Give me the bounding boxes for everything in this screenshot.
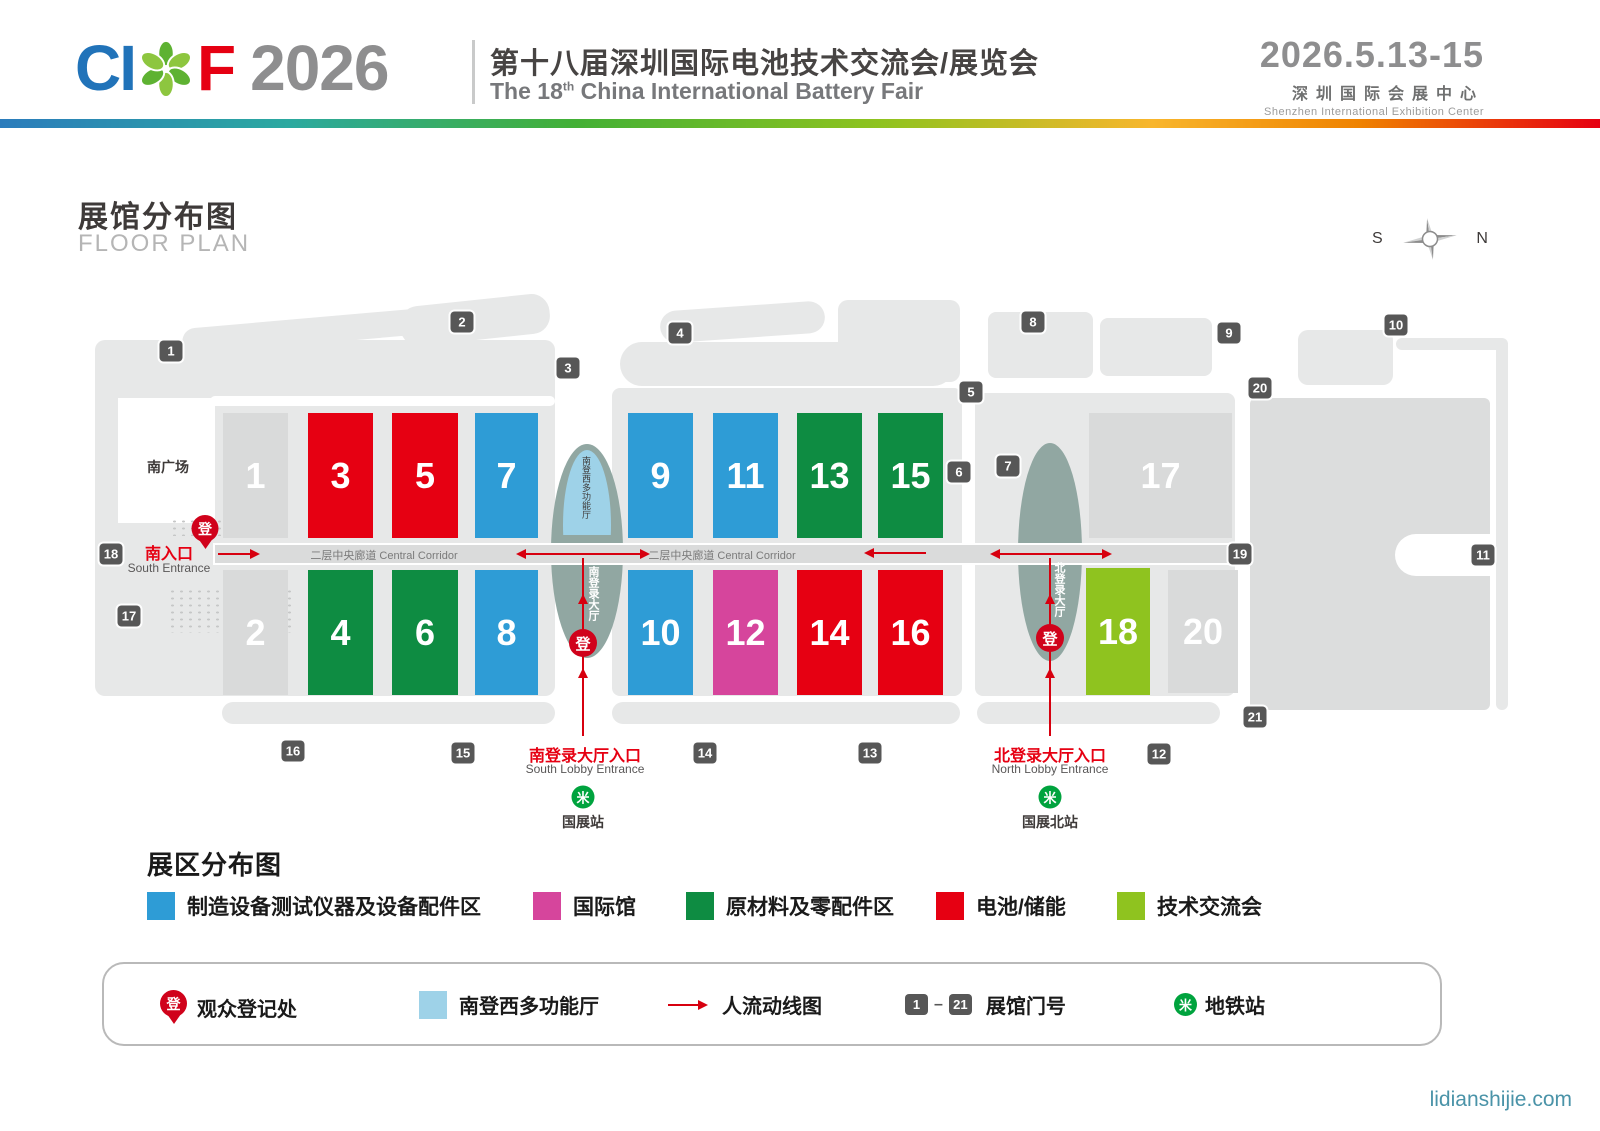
compass-rose-icon	[1395, 210, 1463, 268]
hall-11: 11	[713, 413, 778, 538]
hall-16: 16	[878, 570, 943, 695]
east-outer-wall	[1496, 340, 1508, 710]
gate-badge-21: 21	[1244, 707, 1267, 728]
south-lobby-entrance-en: South Lobby Entrance	[526, 762, 645, 776]
logo-letter-c: C	[75, 31, 119, 105]
legend-swatch-3	[936, 892, 964, 920]
flow-arrowhead-left3	[864, 548, 874, 558]
legend-item-1: 国际馆	[533, 891, 636, 921]
hall-5: 5	[392, 413, 458, 538]
gate-badge-17: 17	[118, 606, 141, 627]
south-plaza-label: 南广场	[147, 457, 189, 477]
legend-label-3: 电池/储能	[976, 891, 1066, 921]
hall-18: 18	[1086, 568, 1150, 695]
bottom-strip-b	[612, 702, 960, 724]
legend-item-3: 电池/储能	[936, 891, 1066, 921]
flow-arrow-icon	[668, 1000, 708, 1010]
key-multifunction-label: 南登西多功能厅	[459, 990, 599, 1019]
gate-badge-19: 19	[1229, 544, 1252, 565]
hall-2: 2	[223, 570, 288, 695]
hall-17: 17	[1089, 413, 1232, 538]
legend-title: 展区分布图	[147, 845, 282, 882]
hall-13: 13	[797, 413, 862, 538]
hall-20: 20	[1168, 570, 1238, 693]
metro-icon: 米	[1174, 993, 1197, 1016]
gate-badge-6: 6	[948, 462, 971, 483]
key-item-multifunction: 南登西多功能厅	[419, 990, 599, 1019]
event-dates: 2026.5.13-15	[1260, 34, 1484, 76]
website-url[interactable]: lidianshijie.com	[1430, 1088, 1572, 1112]
hall-9: 9	[628, 413, 693, 538]
legend-swatch-2	[686, 892, 714, 920]
gate-badge-5: 5	[960, 382, 983, 403]
bottom-strip-c	[977, 702, 1220, 724]
legend-item-2: 原材料及零配件区	[686, 891, 894, 921]
south-lobby-registration-icon: 登	[569, 629, 597, 657]
south-multifunction-label: 南登西多功能厅	[580, 456, 593, 519]
north-lobby-entrance-en: North Lobby Entrance	[992, 762, 1109, 776]
gate-badge-3: 3	[557, 358, 580, 379]
key-gates-label: 展馆门号	[986, 990, 1066, 1019]
roof-blob-north-b	[1100, 318, 1212, 376]
venue-name-cn: 深圳国际会展中心	[1260, 80, 1484, 104]
compass: S N	[1372, 212, 1488, 266]
metro-station-north-label: 国展北站	[1022, 812, 1078, 832]
gate-badge-2: 2	[451, 312, 474, 333]
key-registration-label: 观众登记处	[197, 993, 297, 1022]
hall-8: 8	[475, 570, 538, 695]
gate-badge-9: 9	[1218, 323, 1241, 344]
legend-item-0: 制造设备测试仪器及设备配件区	[147, 891, 481, 921]
registration-pin-icon: 登	[160, 990, 187, 1024]
flow-arrowhead-up11	[1045, 668, 1055, 678]
cibf-logo: C I F 2026	[75, 28, 388, 108]
flower-logo-icon	[137, 39, 195, 97]
event-title-en-sup: th	[563, 79, 574, 93]
gate-badge-15: 15	[452, 743, 475, 764]
logo-letter-i: I	[119, 31, 135, 105]
legend-label-4: 技术交流会	[1157, 891, 1262, 921]
gate-badge-11: 11	[1472, 545, 1495, 566]
road-above-halls	[210, 396, 555, 406]
metro-icon-north: 米	[1039, 786, 1062, 809]
key-item-flow: 人流动线图	[668, 990, 822, 1019]
metro-station-south-label: 国展站	[562, 812, 604, 832]
gate-badge-18: 18	[100, 544, 123, 565]
metro-icon-south: 米	[572, 786, 595, 809]
gate-badge-8: 8	[1022, 312, 1045, 333]
flow-line-h4	[998, 553, 1050, 556]
gate-badge-16: 16	[282, 741, 305, 762]
logo-year: 2026	[250, 31, 388, 105]
flow-line-h0	[218, 553, 252, 556]
flow-arrowhead-right5	[1102, 549, 1112, 559]
key-item-registration: 登 观众登记处	[160, 990, 297, 1024]
hall-3: 3	[308, 413, 373, 538]
gate-badge-12: 12	[1148, 744, 1171, 765]
event-title-cn: 第十八届深圳国际电池技术交流会/展览会	[490, 40, 1039, 82]
gate-range-dash: –	[934, 996, 943, 1014]
gate-badge-13: 13	[859, 743, 882, 764]
north-lobby-registration-icon: 登	[1036, 624, 1064, 652]
gate-badge-21-icon: 21	[949, 994, 972, 1015]
compass-south-label: S	[1372, 230, 1383, 248]
flow-arrowhead-right0	[250, 549, 260, 559]
hall-4: 4	[308, 570, 373, 695]
roof-blob-northeast	[1298, 330, 1393, 385]
legend-swatch-4	[1117, 892, 1145, 920]
floorplan-title-en: FLOOR PLAN	[78, 230, 250, 258]
flow-line-h1	[524, 553, 585, 556]
key-flow-label: 人流动线图	[722, 990, 822, 1019]
gate-badge-4: 4	[669, 323, 692, 344]
bottom-strip-a	[222, 702, 555, 724]
event-title-en: The 18th China International Battery Fai…	[490, 78, 923, 105]
northeast-outer-wall	[1396, 338, 1508, 350]
legend-label-2: 原材料及零配件区	[726, 891, 894, 921]
flow-arrowhead-up00	[578, 594, 588, 604]
legend-item-4: 技术交流会	[1117, 891, 1262, 921]
hall-1: 1	[223, 413, 288, 538]
hall-7: 7	[475, 413, 538, 538]
event-title-en-prefix: The 18	[490, 78, 563, 104]
south-entrance-registration-pin: 登	[192, 515, 219, 549]
central-corridor-label-1: 二层中央廊道 Central Corridor	[310, 547, 457, 563]
compass-north-label: N	[1476, 230, 1488, 248]
central-corridor-label-2: 二层中央廊道 Central Corridor	[648, 547, 795, 563]
hall-12: 12	[713, 570, 778, 695]
hall-15: 15	[878, 413, 943, 538]
logo-letter-f: F	[197, 31, 234, 105]
gate-badge-7: 7	[997, 456, 1020, 477]
legend-swatch-1	[533, 892, 561, 920]
gate-badge-1-icon: 1	[905, 994, 928, 1015]
flow-arrowhead-up01	[578, 668, 588, 678]
south-entrance-label-en: South Entrance	[128, 561, 211, 575]
flow-line-h3	[872, 552, 926, 555]
legend-swatch-0	[147, 892, 175, 920]
key-item-gates: 1 – 21 展馆门号	[905, 990, 1066, 1019]
flow-arrowhead-up10	[1045, 594, 1055, 604]
legend-label-0: 制造设备测试仪器及设备配件区	[187, 891, 481, 921]
roof-blob-mid-c	[838, 300, 960, 382]
flow-line-h5	[1050, 553, 1104, 556]
key-item-metro: 米 地铁站	[1174, 990, 1265, 1019]
multifunction-hall-swatch	[419, 991, 447, 1019]
header-gradient-bar	[0, 119, 1600, 128]
header-right: 2026.5.13-15 深圳国际会展中心 Shenzhen Internati…	[1260, 34, 1484, 118]
gate-badge-14: 14	[694, 743, 717, 764]
header-divider	[472, 40, 475, 104]
hall-10: 10	[628, 570, 693, 695]
key-metro-label: 地铁站	[1205, 990, 1265, 1019]
flow-arrowhead-right2	[640, 549, 650, 559]
hall-6: 6	[392, 570, 458, 695]
registration-pin-icon: 登	[192, 515, 219, 542]
gate-badge-20: 20	[1249, 378, 1272, 399]
flow-line-h2	[585, 553, 642, 556]
gate-badge-10: 10	[1385, 315, 1408, 336]
gate-badge-1: 1	[160, 341, 183, 362]
flow-arrowhead-left1	[516, 549, 526, 559]
venue-name-en: Shenzhen International Exhibition Center	[1260, 106, 1484, 118]
event-title-en-suffix: China International Battery Fair	[574, 78, 923, 104]
legend-label-1: 国际馆	[573, 891, 636, 921]
hall-14: 14	[797, 570, 862, 695]
north-lobby-label: 北登录大厅	[1051, 562, 1067, 617]
flow-arrowhead-left4	[990, 549, 1000, 559]
